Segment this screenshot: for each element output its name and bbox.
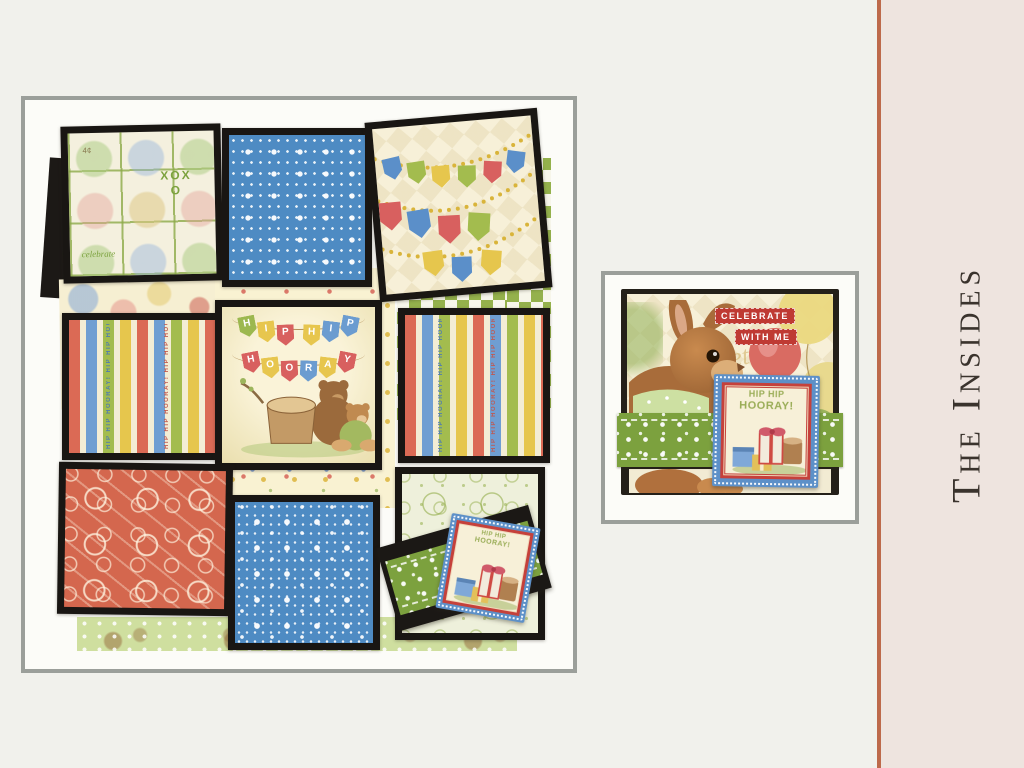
closed-album-photo: together [615, 285, 845, 510]
stamp-paper: 4¢ XOXO celebrate [68, 130, 217, 276]
stripe-paper-right: HIP HIP HOORAY! HIP HIP HOORAY! HIP HIP … [405, 315, 543, 456]
side-panel: The Insides [881, 0, 1024, 768]
panel-hooray-center: HIPHIP HOORAY [215, 300, 382, 470]
celebrate-badge: CELEBRATE [715, 308, 795, 324]
stripe-micro-text: HIP HIP HOORAY! HIP HIP HOORAY! HIP HIP … [164, 324, 170, 449]
with-me-badge: WITH ME [735, 329, 797, 345]
xoxo-stamp-label: XOXO [158, 168, 195, 199]
blue-arrow-paper [229, 135, 365, 280]
panel-stripe-paper-right: HIP HIP HOORAY! HIP HIP HOORAY! HIP HIP … [398, 308, 550, 463]
celebrate-script-label: celebrate [82, 248, 116, 259]
slide-background: The Insides 4¢ XOXO celebrate [0, 0, 1024, 768]
gifts-art [725, 420, 806, 475]
blue-fleur-paper [235, 502, 373, 643]
coral-crackers-paper [64, 469, 226, 609]
tag-face: HIP HIP HOORAY! [725, 387, 806, 474]
banner-hip-hip: HIPHIP [232, 316, 365, 337]
panel-coral-crackers-paper [57, 462, 233, 616]
tag-face: HIP HIP HOORAY! [447, 524, 529, 611]
right-photo-frame: together [601, 271, 859, 524]
panel-stripe-paper-left: HIP HIP HOORAY! HIP HIP HOORAY! HIP HIP … [62, 313, 230, 460]
tag-text: HIP HIP HOORAY! [726, 389, 806, 412]
open-album-photo: 4¢ XOXO celebrate [25, 100, 573, 669]
stripe-micro-text: HIP HIP HOORAY! HIP HIP HOORAY! HIP HIP … [438, 319, 444, 452]
panel-pennant-paper [364, 108, 552, 302]
slide-title: The Insides [942, 265, 989, 503]
hip-hip-hooray-mini-tag: HIP HIP HOORAY! [435, 513, 540, 623]
stripe-micro-text: HIP HIP HOORAY! HIP HIP HOORAY! HIP HIP … [106, 324, 112, 449]
hip-hip-hooray-tag: HIP HIP HOORAY! [712, 374, 820, 488]
bears-and-stump-art [233, 369, 375, 459]
panel-blue-fleur-paper [228, 495, 380, 650]
hip-hip-hooray-center-art: HIPHIP HOORAY [222, 307, 375, 463]
stamp-price-label: 4¢ [82, 146, 91, 155]
stripe-micro-text: HIP HIP HOORAY! HIP HIP HOORAY! HIP HIP … [491, 319, 497, 452]
panel-blue-arrow-paper [222, 128, 372, 287]
stripe-paper-left: HIP HIP HOORAY! HIP HIP HOORAY! HIP HIP … [69, 320, 223, 453]
pennant-paper [372, 115, 545, 294]
left-photo-frame: 4¢ XOXO celebrate [21, 96, 577, 673]
panel-stamp-paper: 4¢ XOXO celebrate [60, 123, 223, 283]
pennant-garland-art [372, 115, 545, 294]
